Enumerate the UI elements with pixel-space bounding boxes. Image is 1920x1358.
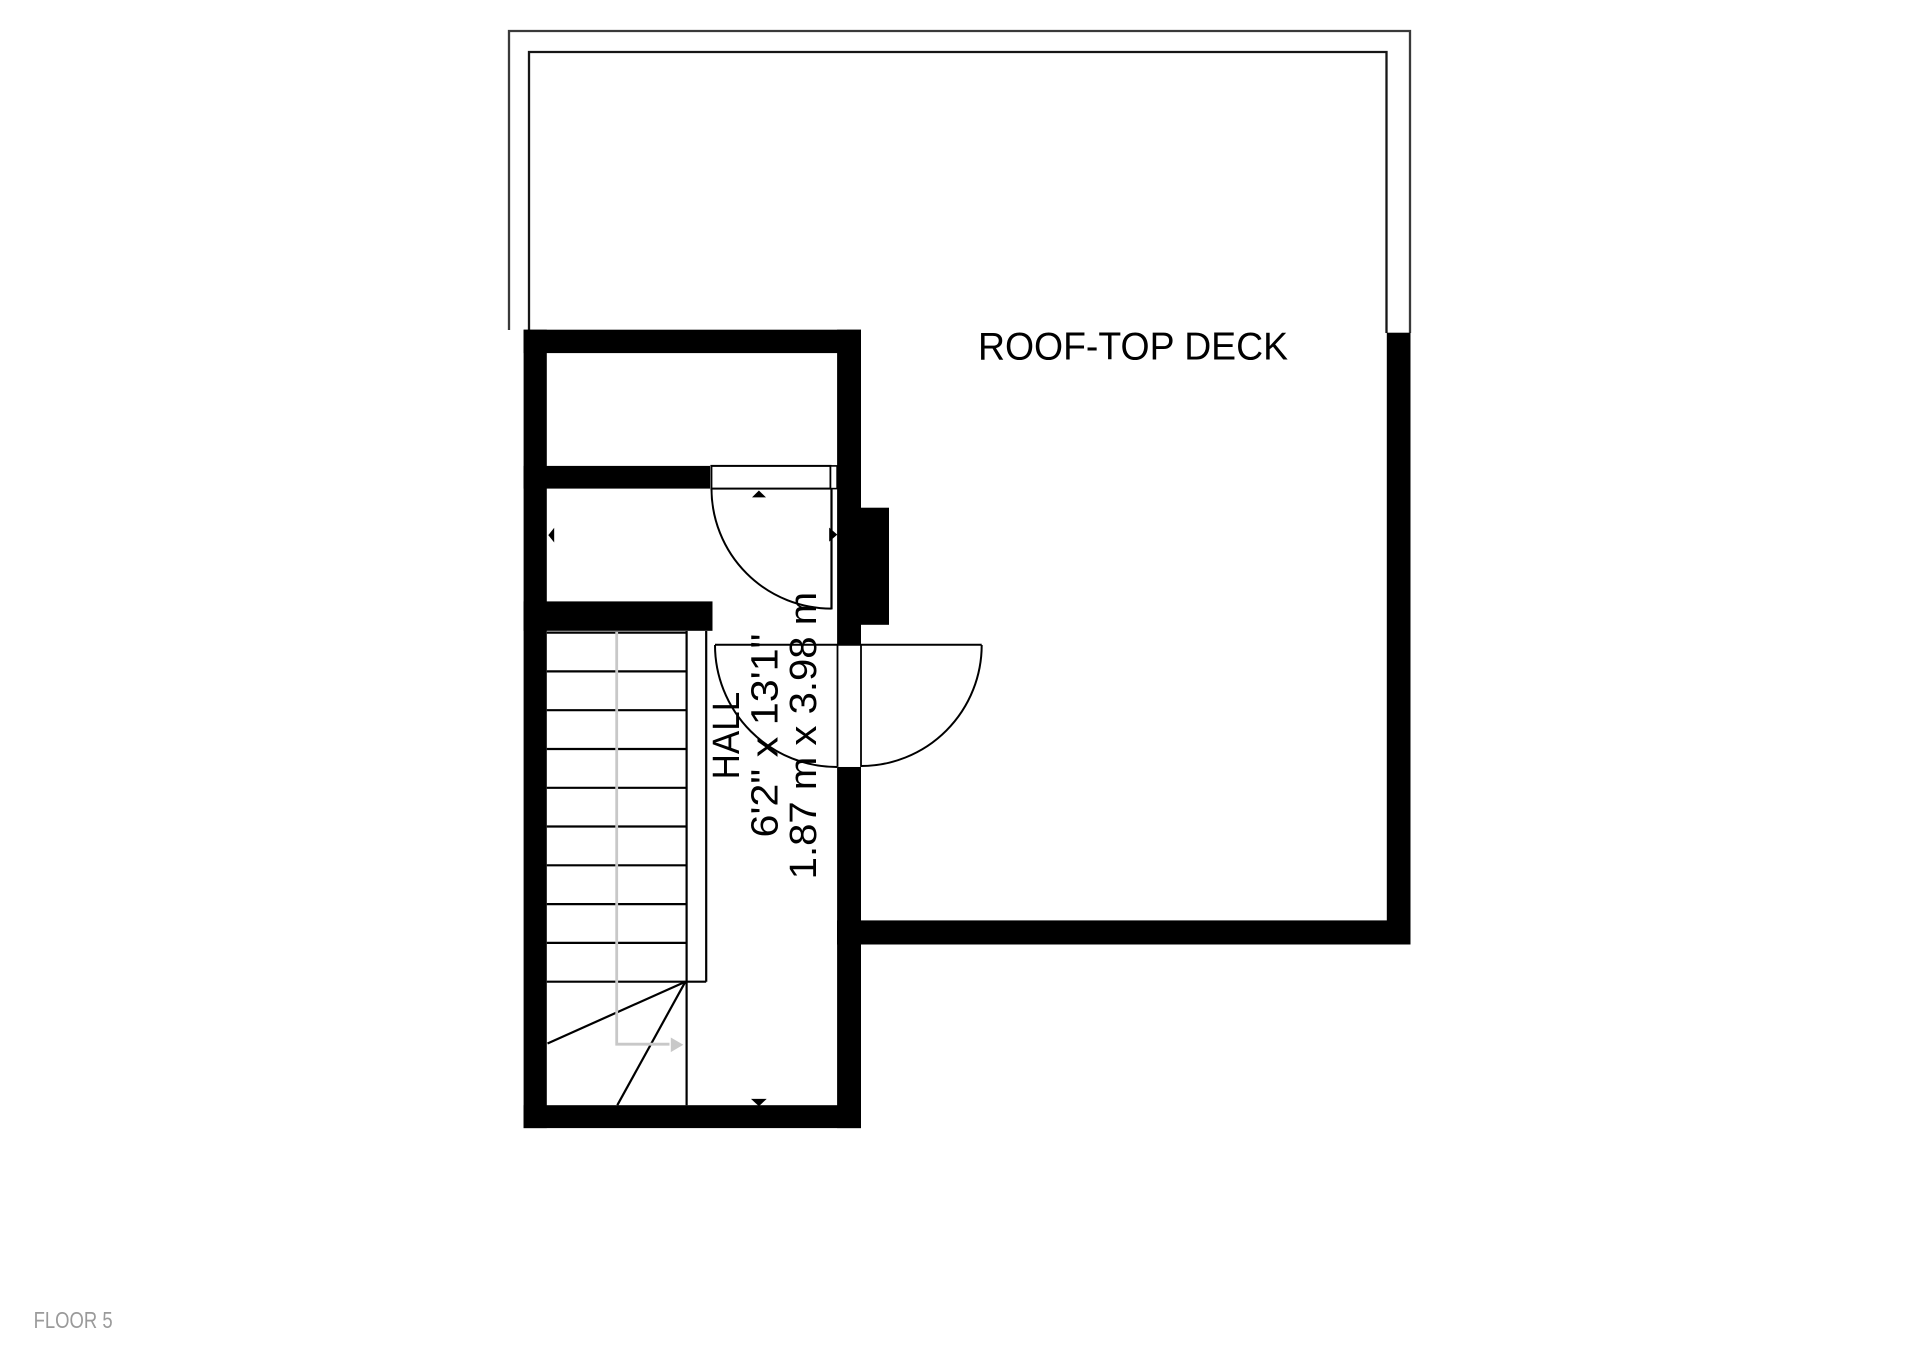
svg-text:HALL: HALL [705,692,747,780]
svg-text:6'2" x 13'1": 6'2" x 13'1" [744,634,786,838]
svg-text:FLOOR 5: FLOOR 5 [34,1307,113,1333]
svg-text:1.87 m x 3.98 m: 1.87 m x 3.98 m [782,592,824,880]
svg-text:ROOF-TOP DECK: ROOF-TOP DECK [978,325,1288,368]
